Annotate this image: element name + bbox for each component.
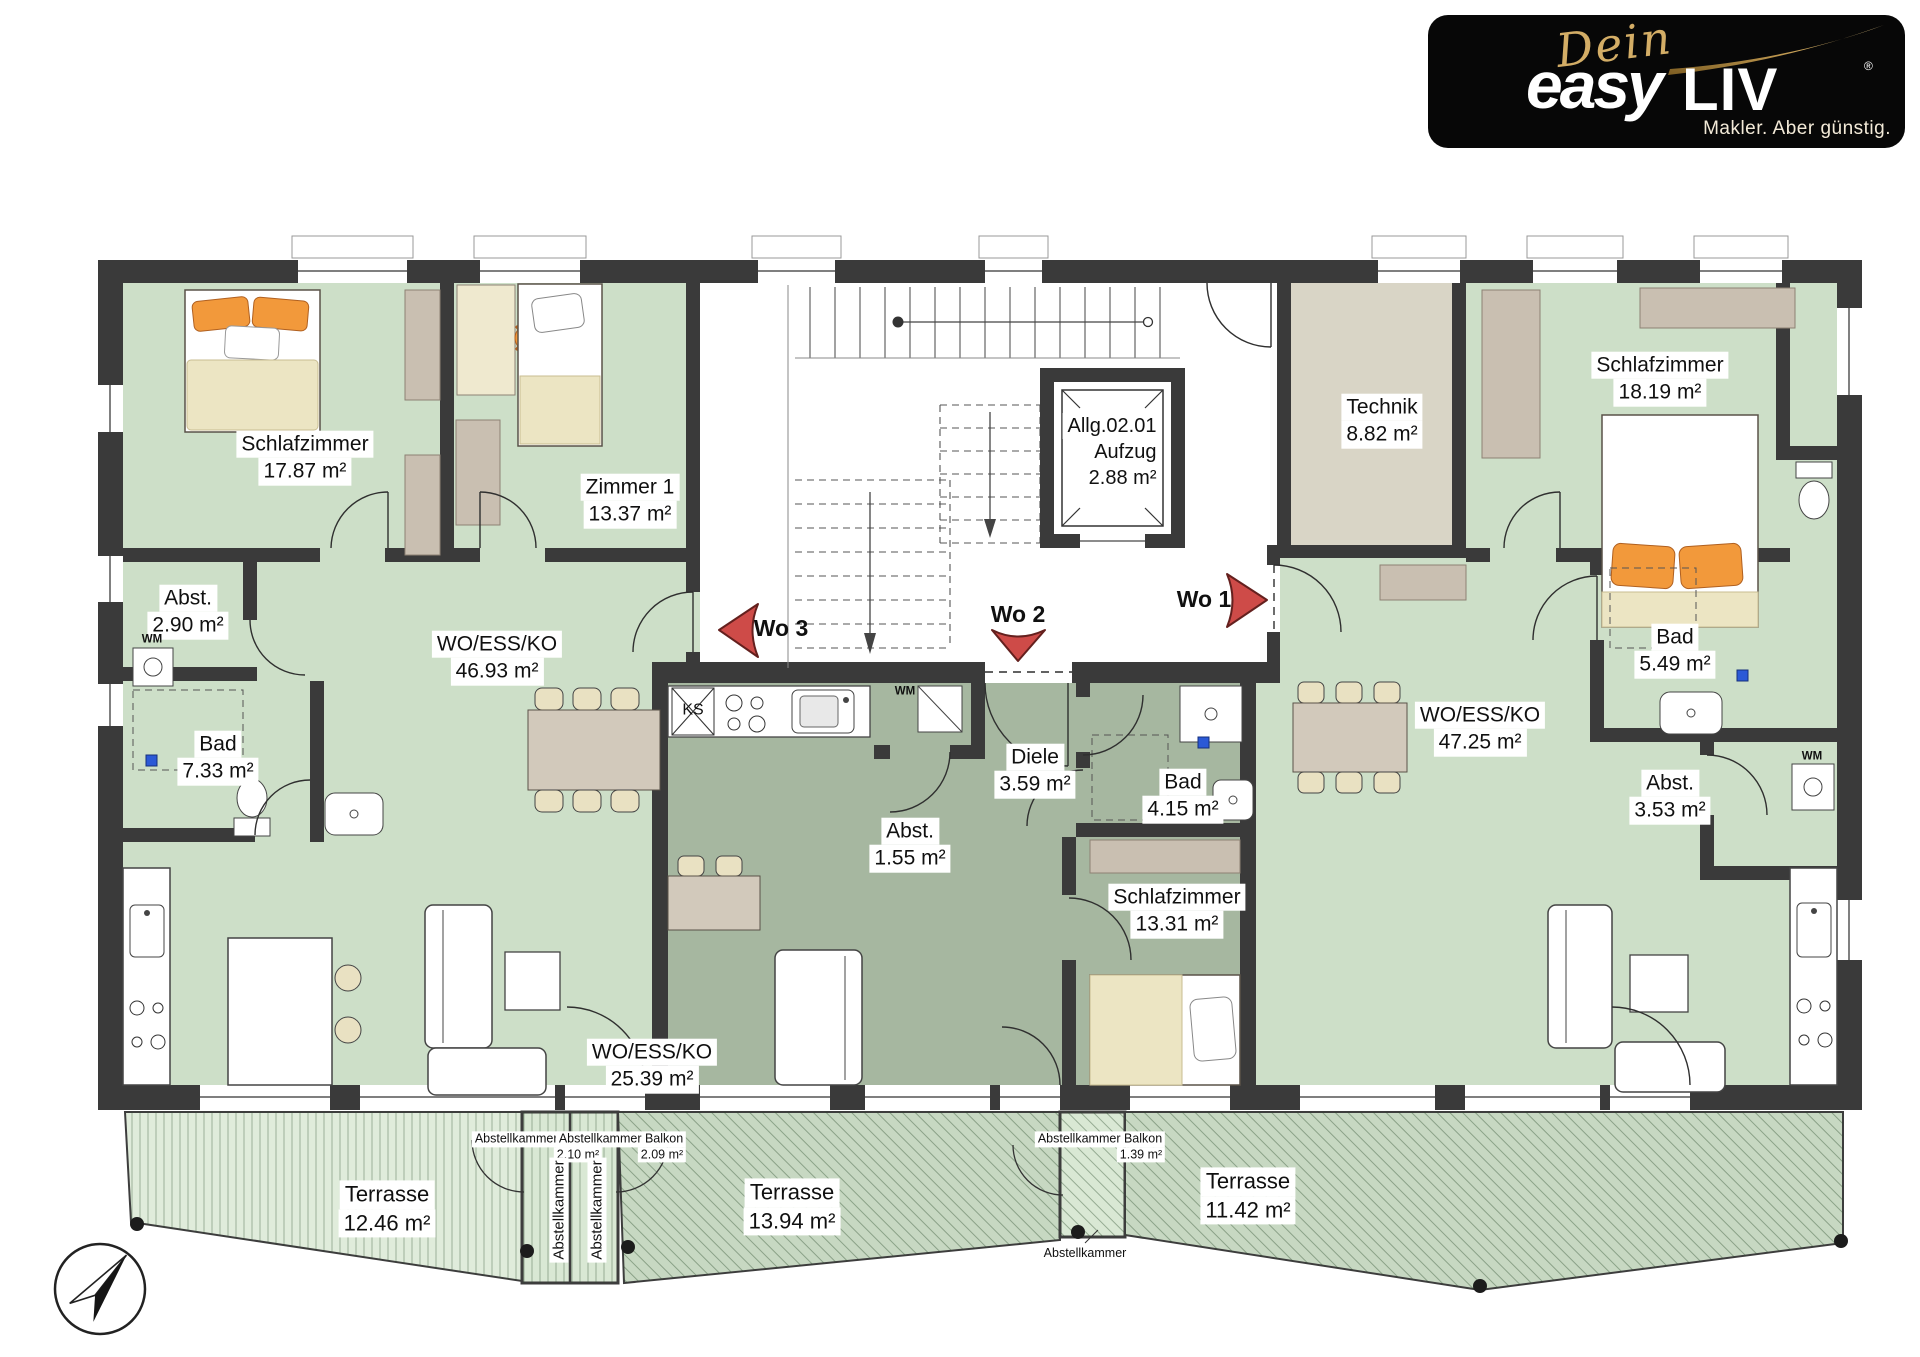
fridge-label-wo2: KS <box>681 701 704 722</box>
room-name: Abst. <box>1641 770 1699 797</box>
room-label-wo2-schlafzimmer: Schlafzimmer 13.31 m² <box>1108 884 1245 939</box>
room-name: WO/ESS/KO <box>1415 702 1545 729</box>
room-label-wo2-abst: Abst. 1.55 m² <box>869 818 950 873</box>
room-label-wo2-bad: Bad 4.15 m² <box>1142 769 1223 824</box>
storage-room-note: Abstellkammer <box>1039 1245 1132 1261</box>
room-area: 3.53 m² <box>1629 797 1710 824</box>
room-label-wo1-schlafzimmer: Schlafzimmer 18.19 m² <box>1591 352 1728 407</box>
terrace-name: Terrasse <box>745 1178 839 1207</box>
terrace-label-middle: Terrasse 13.94 m² <box>744 1178 841 1235</box>
room-name: Bad <box>1651 624 1698 651</box>
terrace-name: Terrasse <box>1201 1167 1295 1196</box>
easyliv-logo: Dein easy LIV ® Makler. Aber günstig. <box>1428 15 1905 148</box>
room-name: Schlafzimmer <box>1591 352 1728 379</box>
room-name: Abst. <box>159 585 217 612</box>
room-area: 1.55 m² <box>869 845 950 872</box>
floorplan-page: Schlafzimmer 17.87 m² Zimmer 1 13.37 m² … <box>0 0 1920 1357</box>
room-area: 7.33 m² <box>177 758 258 785</box>
room-area: 13.37 m² <box>584 501 677 528</box>
room-label-wo1-abst: Abst. 3.53 m² <box>1629 770 1710 825</box>
room-area: 18.19 m² <box>1614 379 1707 406</box>
terrace-area: 11.42 m² <box>1200 1196 1295 1225</box>
unit-label-wo1: Wo 1 <box>1172 585 1237 615</box>
storage-label-2: Abstellkammer Balkon 2.09 m² <box>556 1131 686 1162</box>
room-name: Abst. <box>881 818 939 845</box>
room-area: 3.59 m² <box>994 771 1075 798</box>
room-area: 46.93 m² <box>451 658 544 685</box>
room-area: 8.82 m² <box>1341 421 1422 448</box>
room-name: Technik <box>1341 394 1422 421</box>
storage-area: 1.39 m² <box>1117 1147 1165 1163</box>
floorplan-drawing <box>0 0 1920 1357</box>
unit-label-wo3: Wo 3 <box>749 614 814 644</box>
aufzug-line3: 2.88 m² <box>1084 465 1162 491</box>
terrace-name: Terrasse <box>340 1180 434 1209</box>
room-name: Bad <box>194 731 241 758</box>
room-name: Schlafzimmer <box>236 431 373 458</box>
terrace-area: 12.46 m² <box>339 1209 436 1238</box>
logo-registered-mark: ® <box>1864 59 1873 73</box>
washer-label-wo3: WM <box>141 633 163 648</box>
room-label-aufzug: Allg.02.01 Aufzug 2.88 m² <box>1063 413 1162 491</box>
room-label-technik: Technik 8.82 m² <box>1341 394 1422 449</box>
terrace-label-right: Terrasse 11.42 m² <box>1200 1167 1295 1224</box>
room-label-wo3-schlafzimmer: Schlafzimmer 17.87 m² <box>236 431 373 486</box>
logo-brand-easy: easy <box>1526 47 1661 123</box>
room-area: 25.39 m² <box>606 1066 699 1093</box>
terrace-area: 13.94 m² <box>744 1207 841 1236</box>
room-area: 17.87 m² <box>259 458 352 485</box>
aufzug-line2: Aufzug <box>1089 439 1161 465</box>
unit-label-wo2: Wo 2 <box>986 600 1051 630</box>
storage-area: 2.09 m² <box>638 1147 686 1163</box>
washer-label-wo2: WM <box>894 685 916 700</box>
washer-label-wo1: WM <box>1801 750 1823 765</box>
room-area: 47.25 m² <box>1434 729 1527 756</box>
room-name: Diele <box>1006 744 1064 771</box>
compass-icon <box>55 1244 145 1334</box>
room-name: Schlafzimmer <box>1108 884 1245 911</box>
room-label-wo3-wohnen: WO/ESS/KO 46.93 m² <box>432 631 562 686</box>
room-label-wo2-wohnen: WO/ESS/KO 25.39 m² <box>587 1039 717 1094</box>
storage-name: Abstellkammer Balkon <box>1035 1131 1165 1147</box>
room-name: Bad <box>1159 769 1206 796</box>
room-label-wo1-bad: Bad 5.49 m² <box>1634 624 1715 679</box>
aufzug-line1: Allg.02.01 <box>1063 413 1162 439</box>
room-label-wo3-abst: Abst. 2.90 m² <box>147 585 228 640</box>
room-label-wo1-wohnen: WO/ESS/KO 47.25 m² <box>1415 702 1545 757</box>
room-label-wo3-zimmer1: Zimmer 1 13.37 m² <box>581 474 680 529</box>
storage-room-label-vertical-2: Abstellkammer <box>588 1157 607 1262</box>
room-name: WO/ESS/KO <box>432 631 562 658</box>
room-area: 13.31 m² <box>1131 911 1224 938</box>
room-label-wo2-diele: Diele 3.59 m² <box>994 744 1075 799</box>
storage-label-3: Abstellkammer Balkon 1.39 m² <box>1035 1131 1165 1162</box>
room-label-wo3-bad: Bad 7.33 m² <box>177 731 258 786</box>
room-area: 5.49 m² <box>1634 651 1715 678</box>
logo-tagline: Makler. Aber günstig. <box>1703 118 1891 140</box>
room-name: Zimmer 1 <box>581 474 680 501</box>
room-area: 4.15 m² <box>1142 796 1223 823</box>
room-name: WO/ESS/KO <box>587 1039 717 1066</box>
storage-room-label-vertical-1: Abstellkammer <box>550 1157 569 1262</box>
terrace-label-left: Terrasse 12.46 m² <box>339 1180 436 1237</box>
logo-brand-liv: LIV <box>1682 55 1778 124</box>
storage-name: Abstellkammer Balkon <box>556 1131 686 1147</box>
